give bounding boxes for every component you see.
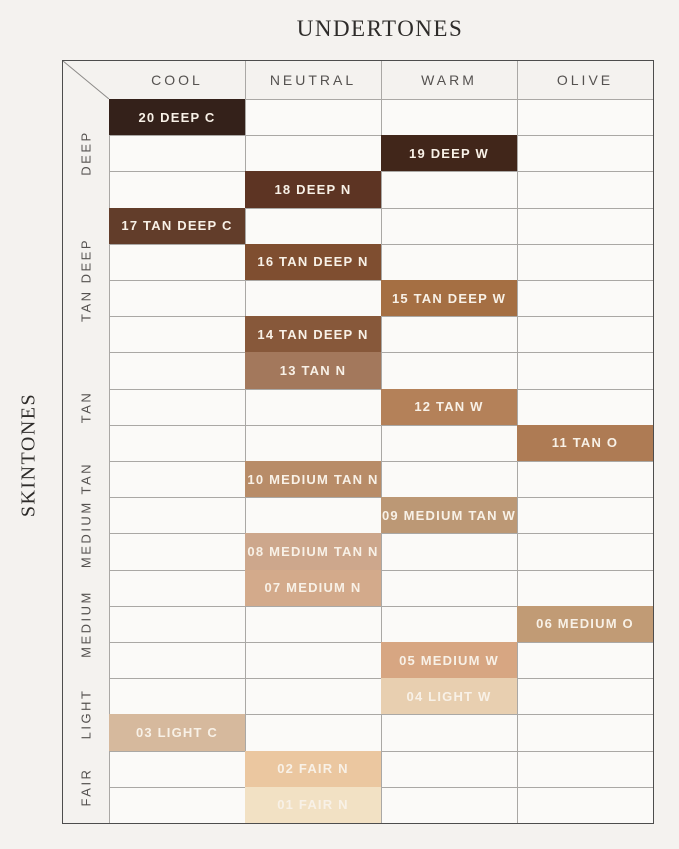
shade-label: 15 TAN DEEP W [392, 291, 506, 306]
skintones-title: SKINTONES [18, 393, 41, 517]
shade-label: 18 DEEP N [274, 182, 351, 197]
grid-line-horizontal [109, 316, 653, 317]
skintone-group-label-deep: DEEP [79, 131, 94, 176]
skintone-group-label-fair: FAIR [79, 767, 94, 806]
grid-line-horizontal [109, 787, 653, 788]
shade-label: 09 MEDIUM TAN W [382, 508, 516, 523]
shade-cell-17-tan-deep-c: 17 TAN DEEP C [109, 208, 245, 244]
shade-label: 04 LIGHT W [407, 689, 492, 704]
shade-label: 07 MEDIUM N [265, 580, 362, 595]
column-header-warm: WARM [381, 61, 517, 99]
shade-cell-13-tan-n: 13 TAN N [245, 352, 381, 388]
shade-cell-15-tan-deep-w: 15 TAN DEEP W [381, 280, 517, 316]
shade-label: 11 TAN O [552, 435, 618, 450]
shade-cell-07-medium-n: 07 MEDIUM N [245, 570, 381, 606]
shade-cell-10-medium-tan-n: 10 MEDIUM TAN N [245, 461, 381, 497]
shade-label: 16 TAN DEEP N [257, 254, 368, 269]
skintone-group-label-light: LIGHT [79, 689, 94, 740]
grid-line-horizontal [109, 751, 653, 752]
shade-cell-01-fair-n: 01 FAIR N [245, 787, 381, 823]
shade-cell-14-tan-deep-n: 14 TAN DEEP N [245, 316, 381, 352]
corner-diagonal-line [63, 61, 109, 99]
shade-cell-09-medium-tan-w: 09 MEDIUM TAN W [381, 497, 517, 533]
shade-cell-12-tan-w: 12 TAN W [381, 389, 517, 425]
shade-label: 05 MEDIUM W [399, 653, 499, 668]
undertones-title: UNDERTONES [108, 16, 652, 42]
shade-cell-19-deep-w: 19 DEEP W [381, 135, 517, 171]
shade-cell-02-fair-n: 02 FAIR N [245, 751, 381, 787]
chart-frame: COOLNEUTRALWARMOLIVEDEEPTAN DEEPTANMEDIU… [62, 60, 654, 824]
shade-cell-16-tan-deep-n: 16 TAN DEEP N [245, 244, 381, 280]
grid-line-horizontal [109, 244, 653, 245]
grid-line-horizontal [109, 570, 653, 571]
skintone-group-label-medium-tan: MEDIUM TAN [79, 462, 94, 568]
shade-label: 03 LIGHT C [136, 725, 218, 740]
shade-cell-18-deep-n: 18 DEEP N [245, 171, 381, 207]
shade-label: 19 DEEP W [409, 146, 489, 161]
shade-cell-05-medium-w: 05 MEDIUM W [381, 642, 517, 678]
shade-label: 13 TAN N [280, 363, 346, 378]
skintone-group-label-tan: TAN [79, 390, 94, 423]
shade-cell-04-light-w: 04 LIGHT W [381, 678, 517, 714]
shade-label: 20 DEEP C [138, 110, 215, 125]
shade-cell-08-medium-tan-n: 08 MEDIUM TAN N [245, 533, 381, 569]
shade-cell-06-medium-o: 06 MEDIUM O [517, 606, 653, 642]
skintone-group-label-medium: MEDIUM [79, 590, 94, 658]
grid-line-horizontal [109, 533, 653, 534]
shade-label: 14 TAN DEEP N [257, 327, 368, 342]
column-header-olive: OLIVE [517, 61, 653, 99]
shade-label: 08 MEDIUM TAN N [247, 544, 378, 559]
column-header-neutral: NEUTRAL [245, 61, 381, 99]
shade-cell-03-light-c: 03 LIGHT C [109, 714, 245, 750]
shade-cell-11-tan-o: 11 TAN O [517, 425, 653, 461]
shade-label: 02 FAIR N [277, 761, 348, 776]
shade-label: 12 TAN W [414, 399, 483, 414]
column-header-cool: COOL [109, 61, 245, 99]
shade-label: 01 FAIR N [277, 797, 348, 812]
grid-line-horizontal [109, 171, 653, 172]
shade-label: 10 MEDIUM TAN N [247, 472, 378, 487]
shade-label: 06 MEDIUM O [536, 616, 634, 631]
grid-line-horizontal [109, 352, 653, 353]
shade-label: 17 TAN DEEP C [121, 218, 232, 233]
grid-line-horizontal [109, 461, 653, 462]
shade-chart-page: UNDERTONES SKINTONES COOLNEUTRALWARMOLIV… [0, 0, 679, 849]
skintone-group-label-tan-deep: TAN DEEP [79, 238, 94, 322]
shade-cell-20-deep-c: 20 DEEP C [109, 99, 245, 135]
